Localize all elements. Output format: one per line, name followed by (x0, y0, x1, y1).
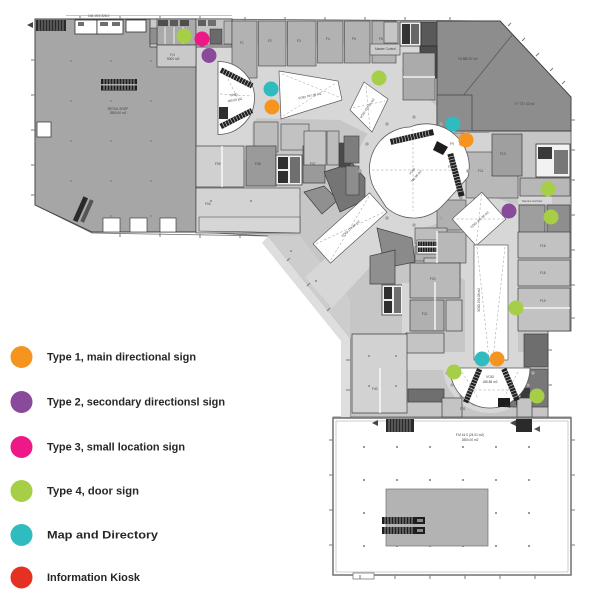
svg-text:2850.00 m2: 2850.00 m2 (110, 111, 127, 115)
svg-text:F7 727.42 m2: F7 727.42 m2 (515, 102, 535, 106)
svg-text:Map and Directory: Map and Directory (47, 530, 159, 542)
svg-text:F13: F13 (500, 152, 506, 156)
svg-text:F1: F1 (240, 41, 244, 45)
svg-text:2850.00 m2: 2850.00 m2 (462, 438, 479, 442)
svg-text:Service Corridor: Service Corridor (522, 199, 542, 203)
svg-text:F6: F6 (379, 37, 383, 41)
svg-text:F9: F9 (450, 142, 454, 146)
svg-text:F21: F21 (422, 312, 428, 316)
svg-text:186.88 m2: 186.88 m2 (482, 380, 497, 384)
svg-text:F31: F31 (460, 407, 466, 411)
svg-text:Type 2, secondary directionsl: Type 2, secondary directionsl sign (47, 397, 225, 409)
svg-text:F20: F20 (430, 277, 436, 281)
svg-text:F05: F05 (215, 162, 221, 166)
svg-text:Type 4, door sign: Type 4, door sign (47, 486, 139, 498)
svg-text:VOID: VOID (486, 375, 494, 379)
svg-text:F07: F07 (310, 162, 316, 166)
svg-text:Information Kiosk: Information Kiosk (47, 572, 141, 584)
svg-text:F04: F04 (205, 202, 211, 206)
svg-text:F18: F18 (540, 271, 546, 275)
svg-text:5000 m2: 5000 m2 (167, 57, 180, 61)
svg-text:F08: F08 (255, 162, 261, 166)
svg-text:F.M 16.0 (24.01 m2): F.M 16.0 (24.01 m2) (456, 433, 485, 437)
svg-text:F3: F3 (297, 39, 301, 43)
svg-text:F16: F16 (540, 244, 546, 248)
svg-text:F40: F40 (372, 387, 378, 391)
svg-text:F11: F11 (478, 169, 483, 173)
svg-text:F4: F4 (326, 37, 330, 41)
svg-text:F2: F2 (268, 39, 272, 43)
svg-text:Type 3, small location sign: Type 3, small location sign (47, 442, 185, 454)
svg-text:Type 1, main directional sign: Type 1, main directional sign (47, 352, 196, 364)
svg-text:F19: F19 (540, 299, 546, 303)
svg-text:F32: F32 (505, 405, 511, 409)
svg-text:F5: F5 (352, 37, 356, 41)
svg-text:Master Control: Master Control (375, 47, 396, 51)
svg-text:F10: F10 (448, 165, 454, 169)
svg-text:VOID 294.06 m2: VOID 294.06 m2 (477, 288, 481, 312)
svg-text:146.15.6 326.0: 146.15.6 326.0 (88, 14, 109, 18)
svg-text:F6 886.97 m2: F6 886.97 m2 (458, 57, 478, 61)
